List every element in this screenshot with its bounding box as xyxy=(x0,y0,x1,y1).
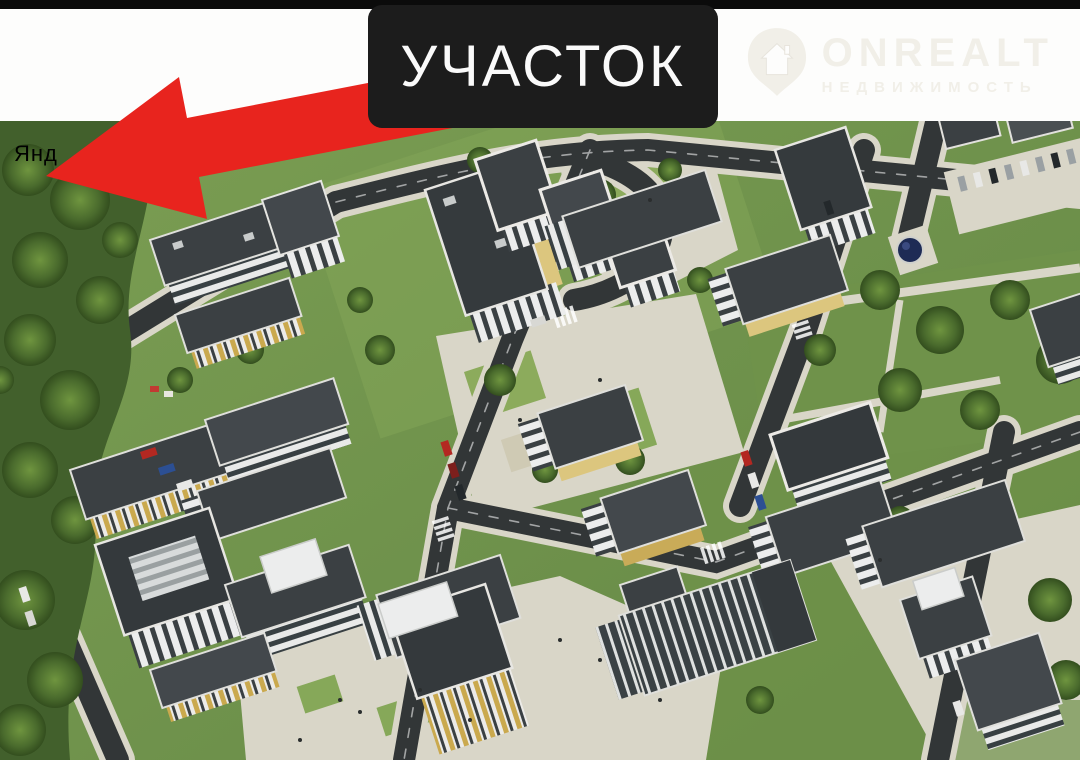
house-location-pin-icon xyxy=(746,26,808,103)
brand-name: ONREALT xyxy=(822,33,1054,73)
plot-label: УЧАСТОК xyxy=(368,5,718,128)
brand-subtitle: НЕДВИЖИМОСТЬ xyxy=(822,79,1038,96)
plot-label-text: УЧАСТОК xyxy=(400,33,686,100)
listing-image: Янд УЧАСТОК ONREALT НЕДВИЖИМОСТЬ xyxy=(0,0,1080,760)
brand-watermark: ONREALT НЕДВИЖИМОСТЬ xyxy=(746,26,1054,103)
